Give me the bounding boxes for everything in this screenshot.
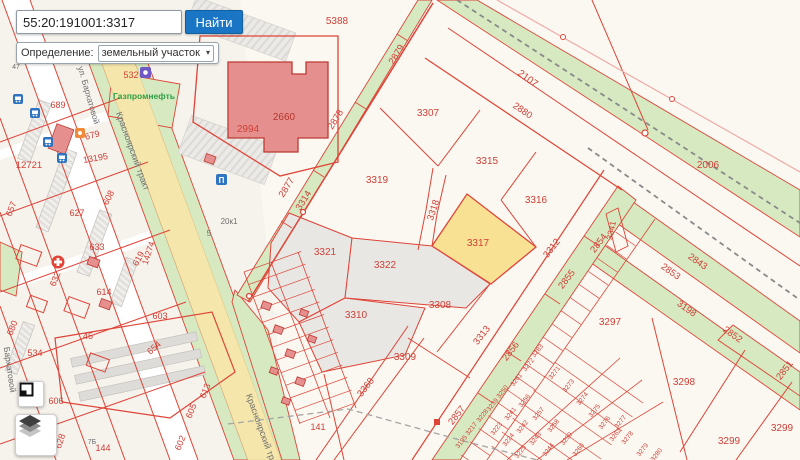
map-label-532: 532	[123, 70, 138, 80]
map-label-45: 45	[83, 331, 93, 341]
map-canvas[interactable]: П 53882994266033073319331533163317332133…	[0, 0, 800, 460]
hospital-cross-icon	[52, 256, 65, 269]
map-label-614: 614	[96, 287, 111, 297]
map-label-3316: 3316	[525, 195, 548, 206]
svg-text:П: П	[219, 176, 225, 185]
map-label-3299: 3299	[771, 423, 794, 434]
map-label-3307: 3307	[417, 108, 440, 119]
definition-dropdown[interactable]: Определение: земельный участок ▾	[16, 42, 219, 64]
map-label-12721: 12721	[16, 160, 42, 171]
map-label-603: 603	[152, 311, 167, 321]
map-label-47: 47	[12, 64, 20, 71]
bus-stop-icon	[57, 153, 67, 163]
map-label-2994: 2994	[237, 124, 260, 135]
brand-poi-icon	[140, 67, 151, 78]
map-label-689: 689	[50, 100, 65, 110]
map-label-3315: 3315	[476, 156, 499, 167]
chevron-down-icon: ▾	[206, 49, 210, 57]
map-label-144: 144	[95, 443, 110, 453]
map-label-3297: 3297	[599, 317, 622, 328]
map-label-Газпромнефть: Газпромнефть	[113, 91, 175, 101]
map-label-3309: 3309	[394, 352, 417, 363]
layers-button[interactable]	[15, 414, 57, 456]
map-label-3308: 3308	[429, 300, 452, 311]
definition-select[interactable]: земельный участок ▾	[98, 45, 214, 62]
bus-stop-icon	[43, 137, 53, 147]
map-label-141: 141	[310, 422, 325, 432]
map-label-3317: 3317	[467, 238, 490, 249]
map-label-2660: 2660	[273, 112, 296, 123]
map-label-534: 534	[27, 348, 42, 358]
extent-icon	[19, 382, 34, 397]
definition-label: Определение:	[21, 47, 94, 59]
bus-stop-icon	[30, 108, 40, 118]
map-label-2006: 2006	[697, 160, 720, 171]
map-label-3321: 3321	[314, 247, 337, 258]
extent-button[interactable]	[18, 381, 44, 407]
search-input[interactable]	[16, 10, 182, 34]
map-label-20к1: 20к1	[221, 217, 238, 226]
map-label-7Б: 7Б	[88, 439, 97, 446]
pipeline-node	[434, 419, 440, 425]
map-label-3322: 3322	[374, 260, 397, 271]
map-label-3310: 3310	[345, 310, 368, 321]
cadastral-map-app: П 53882994266033073319331533163317332133…	[0, 0, 800, 460]
map-label-3319: 3319	[366, 175, 389, 186]
search-bar: Найти	[16, 10, 243, 34]
map-label-633: 633	[89, 242, 104, 252]
map-label-606: 606	[48, 396, 63, 406]
map-label-5388: 5388	[326, 16, 349, 27]
map-label-3299: 3299	[718, 436, 741, 447]
layers-icon	[16, 415, 44, 439]
definition-value: земельный участок	[102, 47, 200, 59]
parking-icon: П	[216, 174, 227, 185]
bus-stop-icon	[13, 94, 23, 104]
map-label-627: 627	[69, 208, 84, 218]
map-label-5: 5	[207, 229, 212, 238]
building-2660	[228, 62, 328, 152]
search-button[interactable]: Найти	[185, 10, 243, 34]
map-label-3298: 3298	[673, 377, 696, 388]
